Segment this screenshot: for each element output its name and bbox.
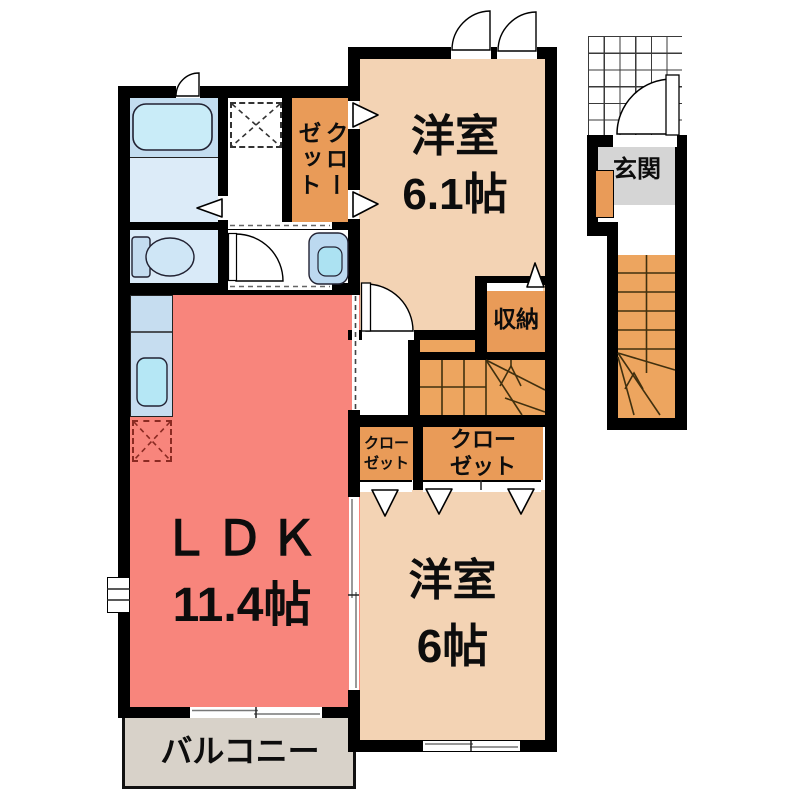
room6-label: 洋室 [365, 556, 540, 607]
washer-space-box [230, 102, 282, 148]
washroom-sliding-bottom [228, 283, 332, 290]
wall-genkan-left-lower [607, 236, 618, 430]
wall-right [545, 47, 557, 752]
wall-storage-left [475, 276, 487, 360]
wall-top-left [118, 86, 358, 98]
porch-hatch-grid [588, 36, 682, 136]
toilet-room [128, 230, 218, 283]
balcony-window [190, 707, 322, 718]
opening-room61-door [362, 330, 414, 340]
room6-size: 6帖 [375, 620, 530, 673]
opening-bath-top-door [176, 86, 200, 98]
floor-plan: 洋室 6.1帖 クローゼット 収納 玄関 クロー ゼット クロー ゼット ＬＤＫ… [0, 0, 800, 800]
wall-genkan-right [675, 135, 687, 430]
ldk-label: ＬＤＫ [135, 512, 350, 567]
wall-genkan-step [587, 222, 618, 236]
wall-room61-left-b [348, 129, 360, 190]
entrance-label: 玄関 [600, 156, 674, 184]
bath-room-upper [128, 98, 218, 157]
ldk-size: 11.4帖 [128, 578, 356, 633]
window-1-swing-arc [452, 11, 490, 50]
wall-closet-left [282, 98, 292, 222]
washroom-sliding-top [228, 222, 332, 229]
wall-bath-toilet-a [218, 98, 228, 196]
closet-small-door-strip [360, 480, 412, 492]
refrigerator-space-box [132, 420, 172, 462]
bath-room-lower [128, 157, 218, 223]
wall-closet-divider [413, 427, 423, 490]
opening-genkan-door [613, 135, 677, 147]
opening-storage-door [487, 283, 543, 291]
wall-hall-stairs [408, 340, 420, 417]
closet-large-label: クロー ゼット [425, 426, 541, 480]
ldk-hall-divider [352, 295, 359, 410]
room6-window [423, 741, 520, 751]
wall-room61-left-a [348, 47, 360, 101]
kitchen-counter [130, 295, 173, 417]
opening-window-2 [497, 47, 537, 59]
closet-large-door-strip [423, 480, 541, 492]
wall-under-landing [420, 352, 545, 360]
room61-size: 6.1帖 [360, 170, 550, 221]
balcony-label: バルコニー [140, 733, 340, 770]
opening-bath-side-door [218, 196, 228, 220]
ldk-left-window [107, 577, 130, 613]
room61-label: 洋室 [370, 112, 540, 163]
closet-small-label: クロー ゼット [360, 434, 413, 474]
storage-label: 収納 [487, 306, 545, 332]
outdoor-stairs-area [618, 255, 675, 418]
washroom [228, 230, 348, 283]
window-2-swing-arc [498, 12, 536, 51]
opening-closet-door-1 [348, 101, 359, 129]
opening-closet-door-2 [348, 190, 359, 219]
room-western-6 [360, 490, 545, 740]
opening-window-1 [451, 47, 491, 59]
indoor-stairs-area [420, 360, 545, 415]
closet-upper-label: クローゼット [294, 112, 348, 208]
